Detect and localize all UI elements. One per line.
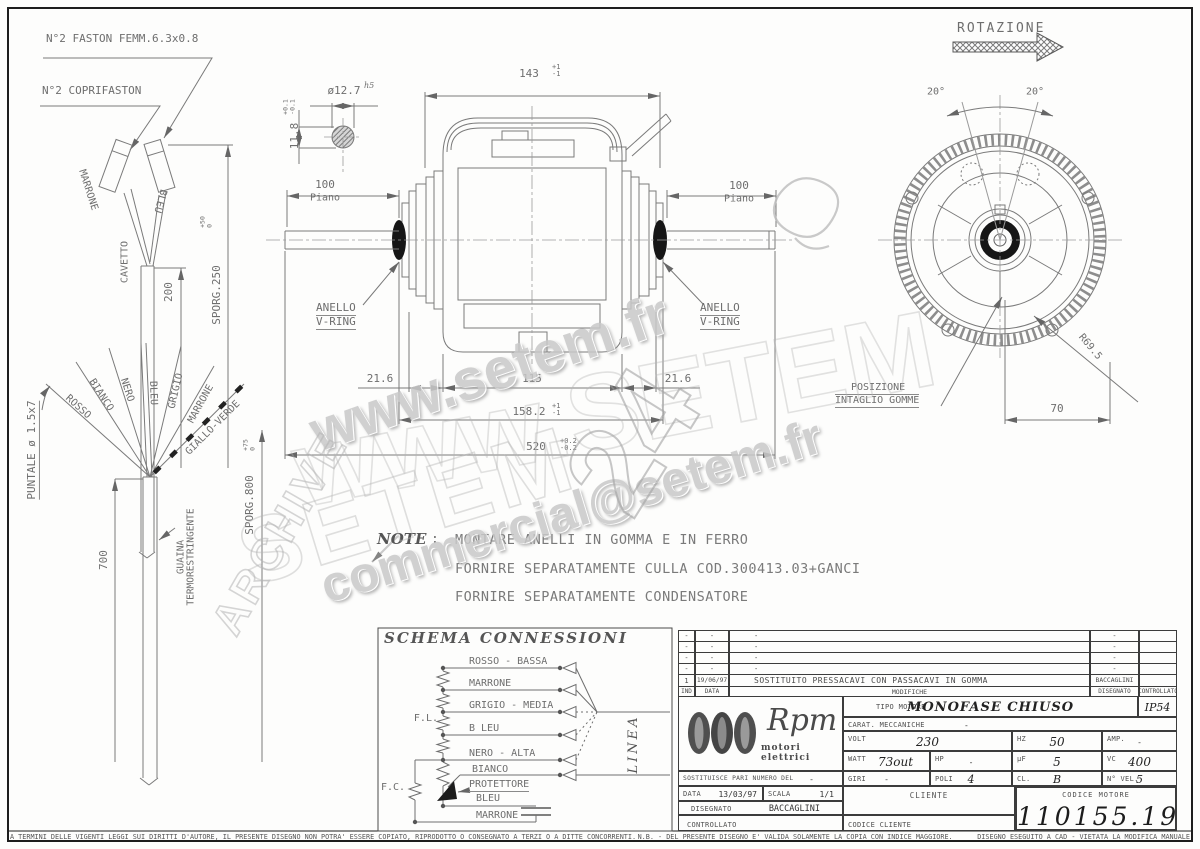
motor-dimensions	[285, 92, 776, 459]
schema-wire1-label: ROSSO - BASSA	[469, 656, 547, 667]
schema-wire5-label: NERO - ALTA	[469, 748, 535, 759]
angle-right-label: 20°	[1026, 87, 1044, 98]
faston-label: N°2 FASTON FEMM.6.3x0.8	[46, 33, 198, 45]
note-line2: FORNIRE SEPARATAMENTE CULLA COD.300413.0…	[455, 562, 861, 577]
schema-wire3-label: GRIGIO - MEDIA	[469, 700, 553, 711]
disegnato-value: BACCAGLINI	[679, 802, 842, 814]
cliente-label: CLIENTE	[844, 787, 1014, 800]
dim-200: 200	[163, 282, 175, 302]
schema-wire4-label: B LEU	[469, 723, 499, 734]
codice-motore-value: 110155.19	[1017, 802, 1175, 831]
giri-value: -	[844, 772, 929, 785]
puntale-label: PUNTALE ø 1.5x7	[26, 400, 40, 499]
schema-wire2-label: MARRONE	[469, 678, 511, 689]
giri-cell: GIRI -	[843, 771, 930, 786]
schema-wire6-label: BIANCO	[472, 764, 508, 775]
legal-strip: A TERMINI DELLE VIGENTI LEGGI SUI DIRITT…	[10, 833, 1190, 841]
hz-value: 50	[1013, 732, 1101, 750]
note-colon: :	[431, 533, 439, 547]
dim-shaft-dia: ø12.7	[327, 85, 360, 97]
vring-right-label: ANELLOV-RING	[700, 302, 740, 330]
note-title: NOTE	[377, 531, 426, 548]
nvel-value: 5	[1103, 772, 1176, 785]
drawing-sheet: N°2 FASTON FEMM.6.3x0.8 N°2 COPRIFASTON …	[0, 0, 1200, 849]
data-value: 13/03/97	[679, 787, 762, 800]
dim-700: 700	[98, 550, 110, 570]
hp-cell: HP -	[930, 751, 1012, 771]
codice-cliente-cell: CODICE CLIENTE	[843, 815, 1015, 831]
title-block: - - - - - - - - - - - - - - - - 1 19/06/…	[678, 630, 1177, 831]
legal-text-left: A TERMINI DELLE VIGENTI LEGGI SUI DIRITT…	[10, 833, 636, 841]
cl-cell: CL. B	[1012, 771, 1102, 786]
hz-cell: HZ 50	[1012, 731, 1102, 751]
uf-value: 5	[1013, 752, 1101, 770]
amp-value: -	[1103, 732, 1176, 750]
sostituisce-cell: SOSTITUISCE PARI NUMERO DEL -	[678, 771, 843, 786]
pencil-scribbles	[372, 178, 838, 562]
ip-value: IP54	[1139, 697, 1176, 716]
coprifaston-label: N°2 COPRIFASTON	[42, 85, 141, 97]
scala-value: 1/1	[764, 787, 842, 800]
dim-115: 115	[522, 373, 542, 385]
legal-text-right: N.B. - DEL PRESENTE DISEGNO E' VALIDA SO…	[638, 833, 1190, 841]
schema-wire8-label: BLEU	[476, 793, 500, 804]
plane-left-label: Piano	[310, 193, 340, 204]
codice-motore-label: CODICE MOTORE	[1017, 788, 1175, 799]
plane-right-label: Piano	[724, 194, 754, 205]
cl-value: B	[1013, 772, 1101, 785]
dim-118-tol: +0.1-0.1	[283, 99, 296, 115]
poli-value: 4	[931, 772, 1011, 785]
dim-shaft-fit: h5	[364, 82, 374, 91]
angle-left-label: 20°	[927, 87, 945, 98]
carat-value: -	[844, 718, 1176, 730]
poli-cell: POLI 4	[930, 771, 1012, 786]
dim-143-tol: +1-1	[552, 64, 560, 78]
vc-value: 400	[1103, 752, 1176, 770]
schema-wire7-label: PROTETTORE	[469, 779, 529, 792]
codice-cliente-label: CODICE CLIENTE	[848, 821, 911, 829]
wire-bleu2-label: BLEU	[147, 381, 159, 405]
scala-cell: SCALA 1/1	[763, 786, 843, 801]
carat-cell: CARAT. MECCANICHE -	[843, 717, 1177, 731]
dim-118: 11.8	[289, 123, 301, 150]
dim-sporg-250: SPORG.250	[211, 265, 223, 325]
tipo-motore-value: MONOFASE CHIUSO	[844, 697, 1137, 716]
hp-value: -	[931, 752, 1011, 770]
cavetto-label: CAVETTO	[120, 241, 131, 283]
motor-end-view	[878, 33, 1138, 424]
schema-fc-label: F.C.	[381, 782, 411, 793]
faston-cable-drawing	[40, 58, 233, 558]
dim-1582-tol: +1-1	[552, 403, 560, 417]
note-line3: FORNIRE SEPARATAMENTE CONDENSATORE	[455, 590, 748, 605]
posizione-label: POSIZIONE INTAGLIO GOMME	[835, 382, 919, 408]
note-line1: MONTARE ANELLI IN GOMMA E IN FERRO	[455, 533, 748, 548]
schema-title: SCHEMA CONNESSIONI	[384, 630, 628, 647]
dim-plane-left: 100	[315, 179, 335, 191]
dim-sporg-800-tol: +750	[243, 439, 256, 451]
uf-cell: µF 5	[1012, 751, 1102, 771]
nvel-cell: N° VEL. 5	[1102, 771, 1177, 786]
dim-520-tol: +0.2-0.2	[560, 438, 577, 452]
dim-plane-right: 100	[729, 180, 749, 192]
watt-cell: WATT 73out	[843, 751, 930, 771]
disegnato-cell: DISEGNATO BACCAGLINI	[678, 801, 843, 815]
logo-cell: Rpm motori elettrici	[678, 696, 843, 771]
schema-wire9-label: MARRONE	[476, 810, 518, 821]
amp-cell: AMP. -	[1102, 731, 1177, 751]
dim-1582: 158.2	[512, 406, 545, 418]
dim-sporg-250-tol: +500	[200, 216, 213, 228]
schema-fl-label: F.L.	[404, 713, 438, 724]
vc-cell: VC 400	[1102, 751, 1177, 771]
controllato-label: CONTROLLATO	[687, 821, 737, 829]
codice-motore-cell: CODICE MOTORE 110155.19	[1015, 786, 1177, 831]
shaft-section-detail	[299, 103, 378, 174]
guaina-label: GUAINATERMORESTRINGENTE	[177, 508, 198, 605]
tipo-motore-cell: TIPO MOTORE MONOFASE CHIUSO	[843, 696, 1138, 717]
schema-linea-label: LINEA	[627, 714, 641, 773]
volt-value: 230	[844, 732, 1011, 750]
rotazione-label: ROTAZIONE	[957, 22, 1045, 36]
logo-sub: motori elettrici	[761, 743, 842, 763]
watt-value: 73out	[844, 752, 929, 770]
dim-216-right: 21.6	[665, 373, 692, 385]
data-cell: DATA 13/03/97	[678, 786, 763, 801]
controllato-cell: CONTROLLATO	[678, 815, 843, 831]
dim-sporg-800: SPORG.800	[244, 475, 256, 535]
rpm-logo-icon	[687, 710, 759, 756]
sostituisce-value: -	[679, 772, 842, 785]
dim-520: 520	[526, 441, 546, 453]
ip-cell: IP54	[1138, 696, 1177, 717]
dim-216-left: 21.6	[367, 373, 394, 385]
dim-70: 70	[1050, 403, 1063, 415]
volt-cell: VOLT 230	[843, 731, 1012, 751]
vring-left-label: ANELLOV-RING	[316, 302, 356, 330]
logo-name: Rpm	[767, 703, 837, 738]
cliente-cell: CLIENTE	[843, 786, 1015, 815]
dim-143: 143	[519, 68, 539, 80]
